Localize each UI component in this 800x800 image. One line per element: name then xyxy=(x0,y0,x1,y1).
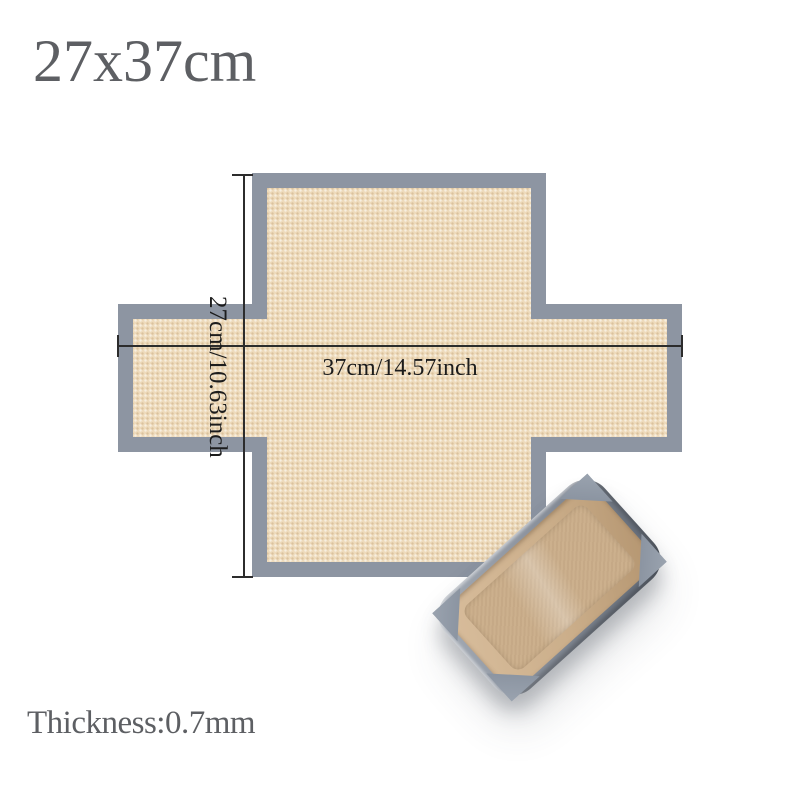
width-dimension-cap-left xyxy=(117,335,119,357)
width-dimension-label: 37cm/14.57inch xyxy=(280,355,520,382)
width-dimension-cap-right xyxy=(681,335,683,357)
height-dimension-cap-bottom xyxy=(232,576,253,578)
cross-mat-diagram: 37cm/14.57inch 27cm/10.63inch xyxy=(0,0,800,800)
height-dimension-label: 27cm/10.63inch xyxy=(203,296,231,460)
height-dimension-line xyxy=(243,175,245,577)
thickness-label: Thickness:0.7mm xyxy=(27,705,255,742)
product-spec-image: 27x37cm 37cm/14.57inch 27cm/10.63inch Th… xyxy=(0,0,800,800)
height-dimension-cap-top xyxy=(232,174,253,176)
